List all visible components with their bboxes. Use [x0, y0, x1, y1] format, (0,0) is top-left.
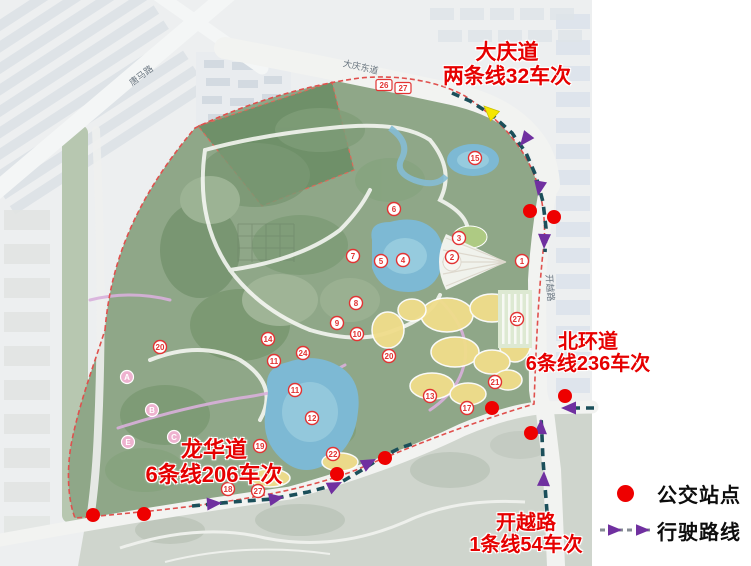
- annotation-beihuan-road: 北环道 6条线236车次: [514, 331, 662, 376]
- poi-marker-number: 21: [491, 378, 500, 387]
- annotation-route-count: 6条线236车次: [514, 353, 662, 375]
- bus-stop-dot: [137, 507, 151, 521]
- city-block: [556, 170, 590, 185]
- city-block: [520, 8, 544, 20]
- city-block: [430, 8, 454, 20]
- bus-stop-dot: [547, 210, 561, 224]
- bus-stop-dot: [378, 451, 392, 465]
- annotation-route-count: 6条线206车次: [118, 463, 310, 488]
- bus-stop-dot: [485, 401, 499, 415]
- city-block: [550, 8, 574, 20]
- poi-marker-number: 3: [457, 234, 462, 243]
- poi-marker-number: 2: [450, 253, 455, 262]
- poi-marker-number: 11: [291, 386, 300, 395]
- city-block: [4, 482, 50, 502]
- city-block: [4, 244, 50, 264]
- city-block: [4, 448, 50, 468]
- city-block: [460, 8, 484, 20]
- poi-marker-number: 20: [385, 352, 394, 361]
- route-arrow-icon: [598, 522, 652, 538]
- poi-marker-number: 20: [156, 343, 165, 352]
- city-block: [556, 196, 590, 211]
- legend-item-bus-stop: 公交站点: [598, 480, 741, 506]
- annotation-route-count: 两条线32车次: [426, 65, 588, 89]
- annotation-road-name: 大庆道: [426, 41, 588, 65]
- poi-marker-number: 8: [354, 299, 359, 308]
- legend-label: 行驶路线: [657, 516, 741, 545]
- bus-stop-dot: [330, 467, 344, 481]
- city-block: [556, 92, 590, 107]
- poi-marker-number: B: [149, 406, 155, 415]
- legend-item-route: 行驶路线: [598, 517, 741, 543]
- city-block: [556, 118, 590, 133]
- legend: 公交站点 行驶路线: [598, 480, 741, 554]
- poi-marker-number: 6: [392, 205, 397, 214]
- city-block: [556, 222, 590, 237]
- poi-marker-number: 15: [471, 154, 480, 163]
- city-block: [556, 248, 590, 263]
- poi-marker-number: 22: [329, 450, 338, 459]
- poi-marker-number: 4: [401, 256, 406, 265]
- city-block: [490, 8, 514, 20]
- city-block: [4, 346, 50, 366]
- poi-marker-number: 11: [270, 357, 279, 366]
- annotation-route-count: 1条线54车次: [452, 534, 600, 556]
- city-block: [4, 210, 50, 230]
- city-block: [556, 274, 590, 289]
- annotation-daqing-road: 大庆道 两条线32车次: [426, 41, 588, 88]
- city-block: [4, 312, 50, 332]
- poi-marker-number: A: [124, 373, 130, 382]
- bus-stop-dot: [523, 204, 537, 218]
- annotation-road-name: 北环道: [514, 331, 662, 353]
- poi-marker-number: 1: [520, 257, 525, 266]
- poi-marker-number: 12: [308, 414, 317, 423]
- annotation-road-name: 开越路: [452, 512, 600, 534]
- city-block: [556, 144, 590, 159]
- bus-stop-dot: [86, 508, 100, 522]
- annotation-road-name: 龙华道: [118, 438, 310, 463]
- poi-marker-number: 27: [399, 84, 408, 93]
- bus-stop-dot: [524, 426, 538, 440]
- poi-marker-number: 27: [513, 315, 522, 324]
- poi-marker-number: 24: [299, 349, 308, 358]
- legend-label: 公交站点: [657, 479, 741, 508]
- poi-marker-number: 17: [463, 404, 472, 413]
- poi-marker-number: 5: [379, 257, 384, 266]
- bus-stop-legend-symbol: [598, 485, 652, 502]
- poi-marker-number: 27: [254, 487, 263, 496]
- poi-marker-number: 14: [264, 335, 273, 344]
- poi-marker-number: 26: [380, 81, 389, 90]
- poi-marker-number: 10: [353, 330, 362, 339]
- road-name-label: 开越路: [544, 274, 557, 302]
- city-block: [4, 414, 50, 434]
- bus-stop-dot-icon: [617, 485, 634, 502]
- poi-marker-number: 7: [351, 252, 356, 261]
- city-block: [4, 278, 50, 298]
- city-block: [556, 300, 590, 315]
- city-block: [4, 380, 50, 400]
- annotation-kaiyue-road: 开越路 1条线54车次: [452, 512, 600, 557]
- poi-marker-number: 9: [335, 319, 340, 328]
- annotation-longhua-road: 龙华道 6条线206车次: [118, 438, 310, 487]
- bus-route-plan-figure: 唐马路大庆东道开越路 26271563214578910142411112020…: [0, 0, 751, 566]
- poi-marker-number: 13: [426, 392, 435, 401]
- bus-stop-dot: [558, 389, 572, 403]
- route-legend-symbol: [598, 522, 652, 538]
